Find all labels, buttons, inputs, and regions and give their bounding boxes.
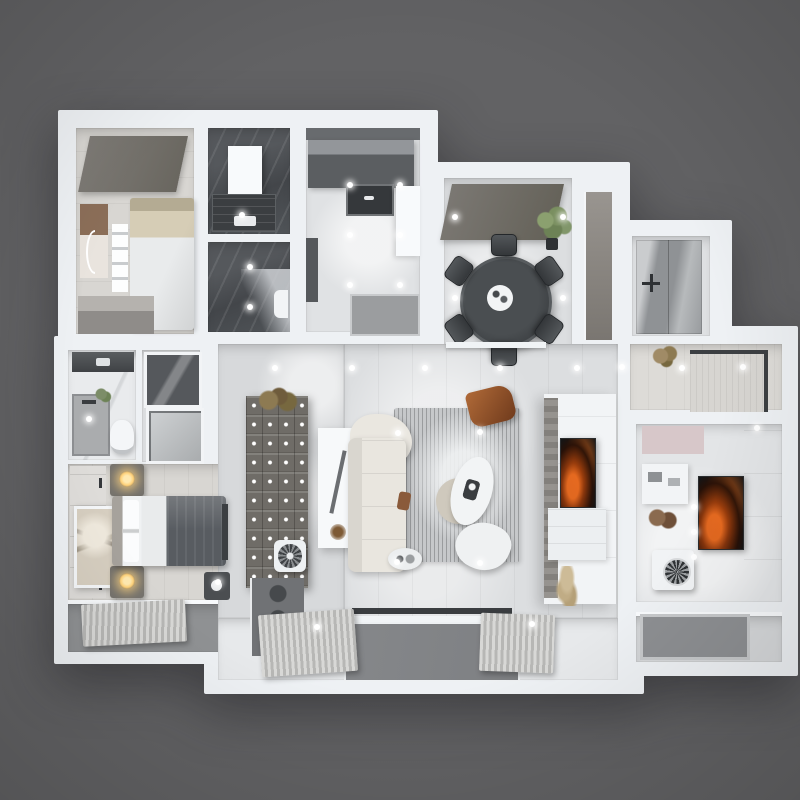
ceiling-light [691, 554, 697, 560]
media-console [548, 508, 606, 560]
foot-bench [222, 504, 228, 560]
ceiling-light [740, 364, 746, 370]
ceiling-light [452, 295, 458, 301]
storage-shelf [112, 224, 128, 292]
wood-deck-mat [81, 599, 187, 646]
entry-rug [690, 350, 768, 412]
wood-deck-mat [258, 609, 358, 678]
toilet [274, 290, 288, 318]
ceiling-light [452, 214, 458, 220]
nightstand-lamp [110, 464, 144, 496]
ceiling-light [314, 624, 320, 630]
floor-bathroom-wc [208, 242, 290, 332]
sideboard [446, 342, 546, 348]
ceiling-light [247, 264, 253, 270]
ceiling-light [422, 365, 428, 371]
ceiling-light [574, 365, 580, 371]
portable-ac-fan [652, 550, 694, 590]
ac-unit [204, 572, 230, 600]
ceiling-light [347, 182, 353, 188]
wall-decor [646, 506, 678, 532]
ceiling-light [347, 232, 353, 238]
wood-deck-mat [479, 613, 555, 674]
ceiling-light [679, 365, 685, 371]
side-table [388, 548, 422, 570]
counter-return [396, 186, 420, 256]
gray-door [584, 192, 612, 340]
apartment-floorplan [0, 0, 800, 800]
ceiling-light [397, 232, 403, 238]
ceiling-light [272, 365, 278, 371]
ceiling-light [560, 295, 566, 301]
ceiling-light [754, 425, 760, 431]
orange-art-tv [698, 476, 744, 550]
backsplash [306, 128, 420, 140]
ceiling-light [529, 621, 535, 627]
vanity-counter [72, 352, 134, 372]
bed [112, 496, 226, 566]
orange-art-tv [560, 438, 596, 508]
kitchen-mat [350, 294, 420, 336]
ceiling-light [394, 559, 400, 565]
ceiling-light [691, 529, 697, 535]
arc-light-wall-art [80, 204, 108, 278]
tall-cabinet [306, 238, 318, 302]
dining-chair [491, 234, 517, 256]
wardrobe [78, 296, 154, 334]
ceiling-light [477, 429, 483, 435]
kitchen-sink [346, 184, 394, 216]
floor-fan [274, 540, 306, 572]
ceiling-light [395, 430, 401, 436]
ceiling-light [691, 504, 697, 510]
ceiling-light [477, 560, 483, 566]
bath-mat [234, 216, 256, 226]
plant [94, 386, 112, 404]
ceiling-light [619, 364, 625, 370]
ceiling-light [247, 304, 253, 310]
wall-shelf [642, 464, 688, 504]
ceiling-light [397, 282, 403, 288]
recessed-ceiling-panel [78, 136, 188, 192]
dried-plant [256, 386, 298, 412]
ceiling-light [497, 365, 503, 371]
ceiling-light [349, 365, 355, 371]
render-backdrop [0, 0, 800, 800]
ceiling-light [560, 214, 566, 220]
toilet [110, 420, 134, 454]
pink-ceiling-panel [642, 426, 704, 454]
kitchen-counter [308, 140, 414, 188]
ceiling-light [239, 212, 245, 218]
ceiling-light [397, 182, 403, 188]
ceiling-light [347, 282, 353, 288]
bright-wall-face [744, 424, 782, 602]
balcony-mat [640, 614, 750, 660]
cross-door-handle [642, 274, 660, 292]
ceiling-light [215, 579, 221, 585]
framed-photo [144, 352, 202, 408]
framed-window [146, 408, 204, 464]
dried-plant [650, 344, 680, 368]
ceiling-light [86, 416, 92, 422]
pampas-grass [554, 566, 580, 606]
potted-plant [534, 206, 572, 242]
nightstand-lamp [110, 566, 144, 598]
